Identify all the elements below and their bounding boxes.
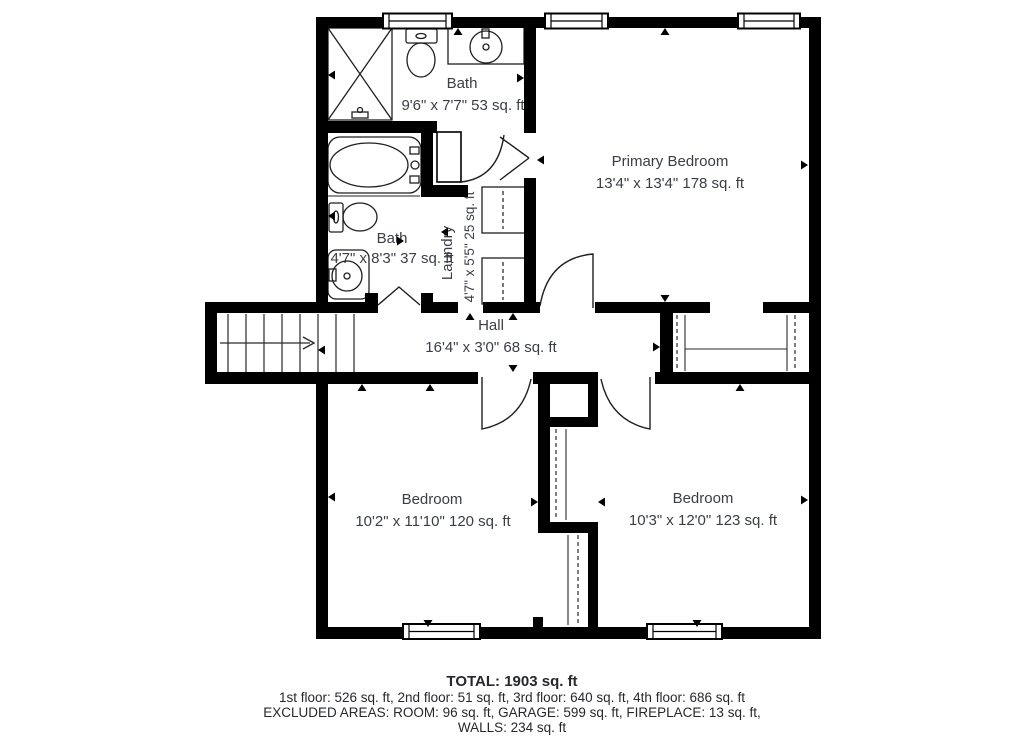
toilet-icon [406, 29, 437, 77]
bathtub-icon [328, 137, 421, 196]
total-area-text: TOTAL: 1903 sq. ft [446, 673, 577, 690]
closet-rod-icon [566, 315, 787, 625]
hall-label: Hall [478, 317, 504, 334]
excluded-areas-text: EXCLUDED AREAS: ROOM: 96 sq. ft, GARAGE:… [263, 705, 760, 720]
area-summary: TOTAL: 1903 sq. ft 1st floor: 526 sq. ft… [263, 673, 760, 735]
bath-top-dims: 9'6" x 7'7" 53 sq. ft [401, 97, 525, 114]
primary-bedroom-label: Primary Bedroom [612, 153, 729, 170]
window-icon [383, 14, 452, 29]
door-arc-icon [461, 135, 504, 182]
hall-dims: 16'4" x 3'0" 68 sq. ft [425, 339, 557, 356]
floor-plan-drawing: Bath 9'6" x 7'7" 53 sq. ft Primary Bedro… [0, 0, 1024, 738]
window-icon [738, 14, 800, 29]
bedroom-left-label: Bedroom [402, 491, 463, 508]
door-arc-icon [601, 377, 650, 429]
door-ajar-icon [378, 287, 420, 305]
open-passage-icon [500, 137, 529, 180]
bedroom-right-dims: 10'3" x 12'0" 123 sq. ft [629, 512, 778, 529]
floor-plan-page: Bath 9'6" x 7'7" 53 sq. ft Primary Bedro… [0, 0, 1024, 738]
room-labels: Bath 9'6" x 7'7" 53 sq. ft Primary Bedro… [330, 75, 777, 530]
door-leaf [437, 132, 504, 182]
window-icon [647, 624, 722, 639]
stairs-icon [220, 314, 354, 372]
shower-icon [328, 28, 392, 120]
bedroom-left-dims: 10'2" x 11'10" 120 sq. ft [355, 513, 511, 530]
laundry-dims: 4'7" x 5'5" 25 sq. ft [462, 191, 477, 302]
door-arc-icon [482, 377, 531, 429]
toilet-icon [329, 203, 377, 232]
primary-bedroom-dims: 13'4" x 13'4" 178 sq. ft [596, 175, 745, 192]
bath-top-label: Bath [447, 75, 478, 92]
door-arc-icon [540, 254, 593, 308]
walls-area-text: WALLS: 234 sq. ft [458, 720, 567, 735]
bath-hall-dims: 4'7" x 8'3" 37 sq. ft [330, 250, 454, 267]
washer-dryer-icon [482, 187, 528, 304]
window-icon [403, 624, 480, 639]
bedroom-right-label: Bedroom [673, 490, 734, 507]
window-icon [545, 14, 608, 29]
bath-hall-label: Bath [377, 230, 408, 247]
floor-areas-text: 1st floor: 526 sq. ft, 2nd floor: 51 sq.… [279, 690, 745, 705]
